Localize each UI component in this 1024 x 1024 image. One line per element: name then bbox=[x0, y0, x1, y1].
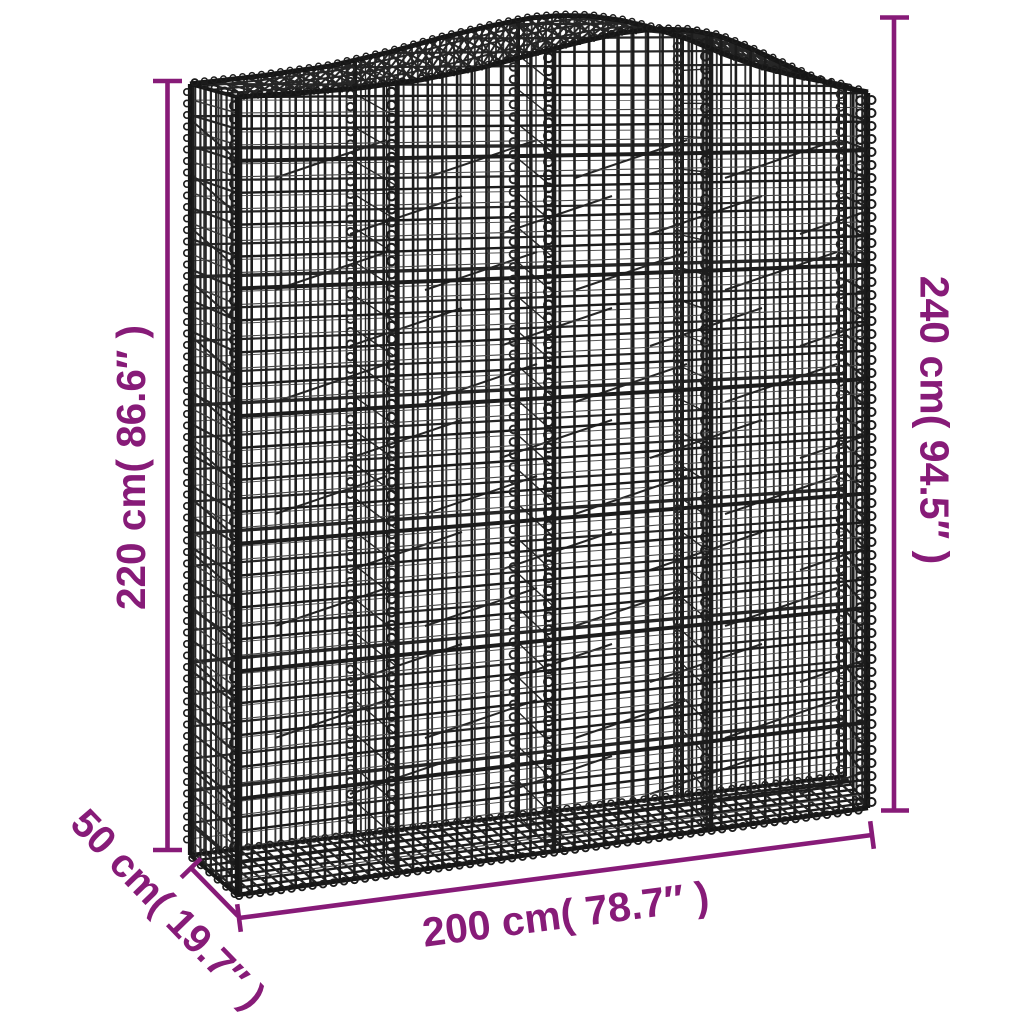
svg-text:220 cm( 86.6″ ): 220 cm( 86.6″ ) bbox=[108, 325, 154, 610]
svg-text:240 cm( 94.5″ ): 240 cm( 94.5″ ) bbox=[912, 276, 958, 565]
